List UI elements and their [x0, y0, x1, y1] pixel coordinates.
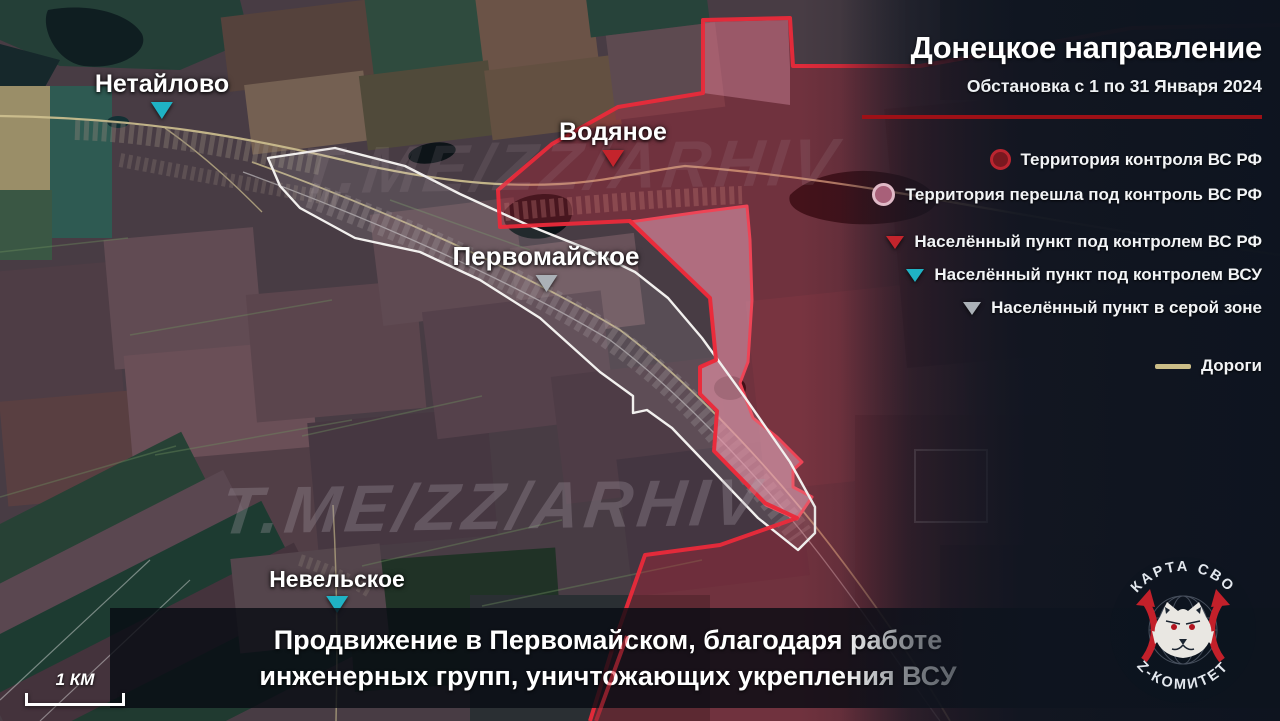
title-divider	[862, 115, 1262, 119]
cyan-triangle-icon	[906, 269, 924, 282]
legend: Территория контроля ВС РФ Территория пер…	[840, 149, 1262, 376]
legend-item-ru-settlement: Населённый пункт под контролем ВС РФ	[840, 232, 1262, 252]
z-komitet-logo: КАРТА СВО Z-КОМИТЕТ	[1108, 555, 1258, 705]
legend-item-grey-zone-settlement: Населённый пункт в серой зоне	[840, 298, 1262, 318]
legend-item-ua-settlement: Населённый пункт под контролем ВСУ	[840, 265, 1262, 285]
page-subtitle: Обстановка с 1 по 31 Января 2024	[840, 76, 1262, 97]
page-title: Донецкое направление	[840, 30, 1262, 66]
road-line-icon	[1155, 364, 1191, 369]
legend-item-roads: Дороги	[840, 356, 1262, 376]
red-circle-icon	[990, 149, 1011, 170]
newly-captured-area-north	[703, 20, 790, 105]
gray-triangle-icon	[963, 302, 981, 315]
pink-circle-icon	[872, 183, 895, 206]
situation-map-screenshot: T.ME/ZZ/ARHIV T.ME/ZZ/ARHIV Нетайлово Во…	[0, 0, 1280, 721]
legend-item-captured-territory: Территория перешла под контроль ВС РФ	[840, 183, 1262, 206]
red-triangle-icon	[886, 236, 904, 249]
legend-item-ru-territory: Территория контроля ВС РФ	[840, 149, 1262, 170]
